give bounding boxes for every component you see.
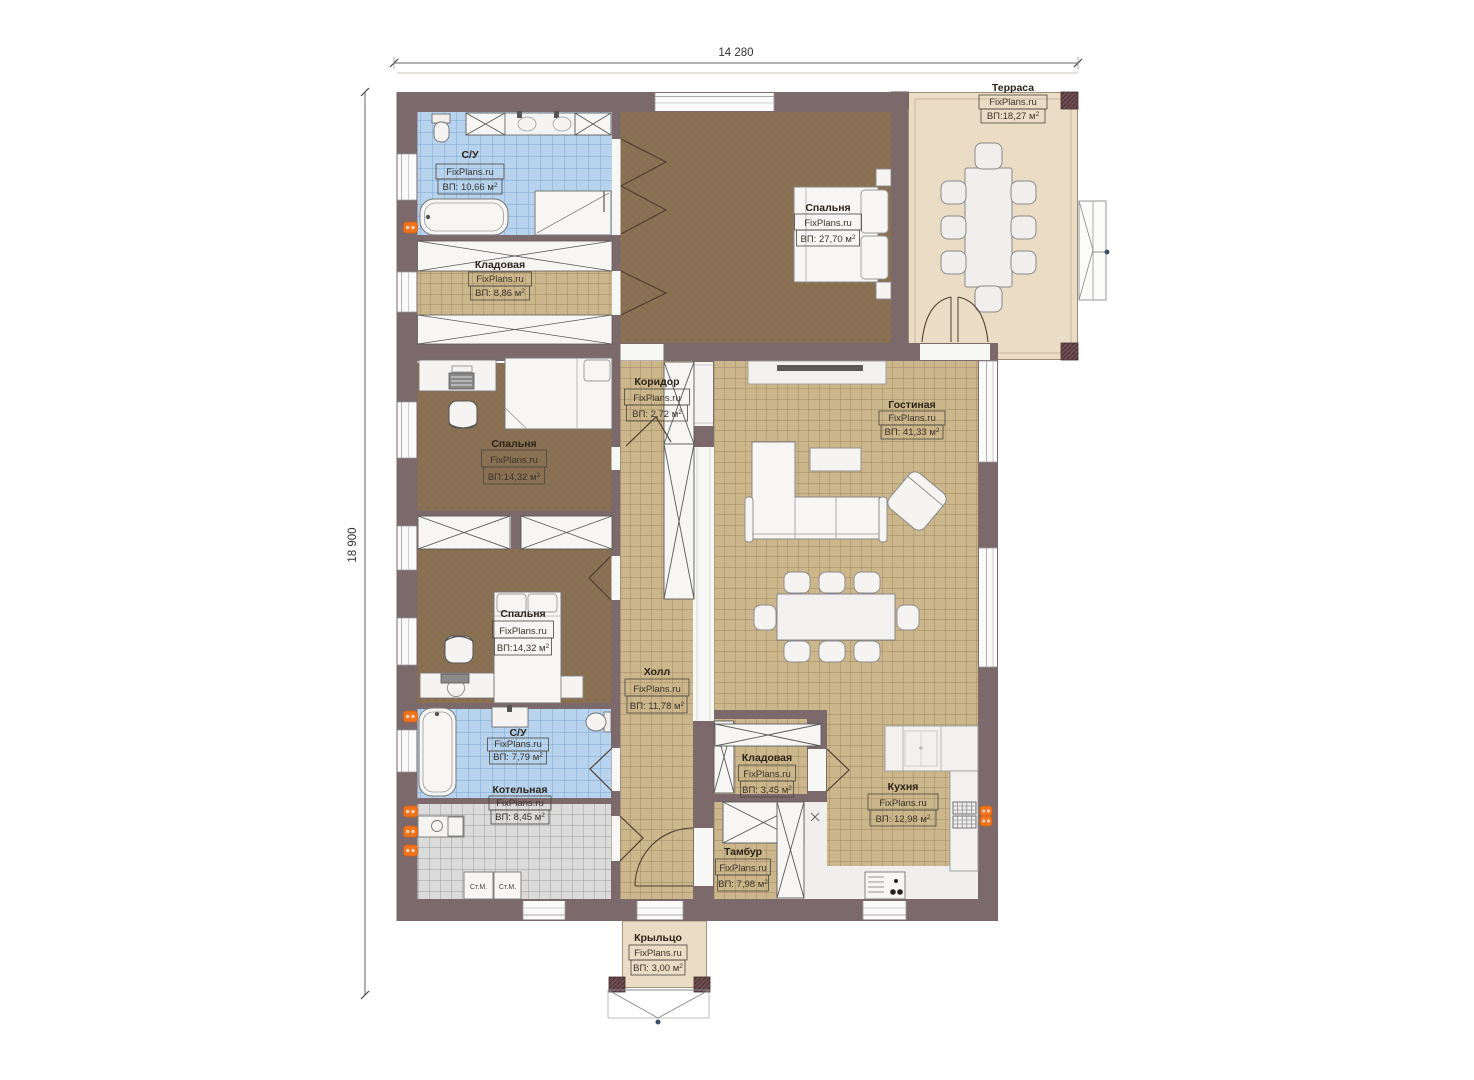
- svg-text:ВП: 8,45 м2: ВП: 8,45 м2: [495, 812, 545, 823]
- svg-text:FixPlans.ru: FixPlans.ru: [476, 274, 524, 285]
- svg-text:С/У: С/У: [461, 149, 479, 161]
- svg-text:FixPlans.ru: FixPlans.ru: [633, 393, 681, 404]
- svg-text:Спальня: Спальня: [805, 202, 850, 214]
- svg-text:ВП: 8,86 м2: ВП: 8,86 м2: [475, 288, 525, 299]
- svg-text:FixPlans.ru: FixPlans.ru: [494, 739, 542, 750]
- svg-text:FixPlans.ru: FixPlans.ru: [719, 863, 767, 874]
- svg-text:Ст.М.: Ст.М.: [470, 884, 487, 891]
- svg-text:ВП: 2,72 м2: ВП: 2,72 м2: [632, 409, 682, 420]
- svg-text:ВП: 7,98 м2: ВП: 7,98 м2: [718, 879, 768, 890]
- svg-text:FixPlans.ru: FixPlans.ru: [743, 769, 791, 780]
- svg-text:ВП: 10,66 м2: ВП: 10,66 м2: [443, 182, 498, 193]
- svg-text:Кухня: Кухня: [888, 781, 919, 793]
- svg-text:ВП: 11,78 м2: ВП: 11,78 м2: [630, 701, 685, 712]
- svg-text:Коридор: Коридор: [634, 376, 679, 388]
- svg-text:ВП: 41,33 м2: ВП: 41,33 м2: [885, 427, 940, 438]
- svg-text:Гостиная: Гостиная: [888, 399, 935, 411]
- svg-text:ВП: 12,98 м2: ВП: 12,98 м2: [876, 814, 931, 825]
- svg-text:Спальня: Спальня: [500, 608, 545, 620]
- svg-text:Тамбур: Тамбур: [724, 846, 762, 858]
- svg-text:Холл: Холл: [644, 666, 670, 678]
- svg-text:Спальня: Спальня: [491, 438, 536, 450]
- svg-text:FixPlans.ru: FixPlans.ru: [989, 97, 1037, 108]
- svg-text:Котельная: Котельная: [493, 784, 548, 796]
- svg-text:FixPlans.ru: FixPlans.ru: [888, 413, 936, 424]
- svg-text:ВП: 27,70 м2: ВП: 27,70 м2: [801, 234, 856, 245]
- svg-text:С/У: С/У: [509, 727, 527, 739]
- svg-text:FixPlans.ru: FixPlans.ru: [804, 218, 852, 229]
- svg-text:ВП:14,32 м2: ВП:14,32 м2: [497, 643, 550, 654]
- svg-text:ВП: 3,45 м2: ВП: 3,45 м2: [742, 785, 792, 796]
- svg-text:Ст.М.: Ст.М.: [499, 884, 516, 891]
- svg-text:ВП: 3,00 м2: ВП: 3,00 м2: [633, 963, 683, 974]
- svg-text:ВП:14,32 м2: ВП:14,32 м2: [488, 472, 541, 483]
- svg-text:ВП: 7,79 м2: ВП: 7,79 м2: [493, 752, 543, 763]
- svg-text:FixPlans.ru: FixPlans.ru: [496, 798, 544, 809]
- svg-text:FixPlans.ru: FixPlans.ru: [490, 455, 538, 466]
- svg-text:ВП:18,27 м2: ВП:18,27 м2: [987, 111, 1040, 122]
- svg-text:Кладовая: Кладовая: [742, 752, 792, 764]
- svg-text:Крыльцо: Крыльцо: [634, 932, 682, 944]
- svg-text:FixPlans.ru: FixPlans.ru: [634, 948, 682, 959]
- svg-text:18 900: 18 900: [347, 527, 359, 562]
- svg-text:14 280: 14 280: [718, 47, 753, 59]
- svg-text:FixPlans.ru: FixPlans.ru: [499, 626, 547, 637]
- svg-text:FixPlans.ru: FixPlans.ru: [633, 684, 681, 695]
- svg-text:Кладовая: Кладовая: [475, 259, 525, 271]
- svg-text:FixPlans.ru: FixPlans.ru: [879, 798, 927, 809]
- svg-text:FixPlans.ru: FixPlans.ru: [446, 167, 494, 178]
- svg-text:Терраса: Терраса: [992, 82, 1034, 94]
